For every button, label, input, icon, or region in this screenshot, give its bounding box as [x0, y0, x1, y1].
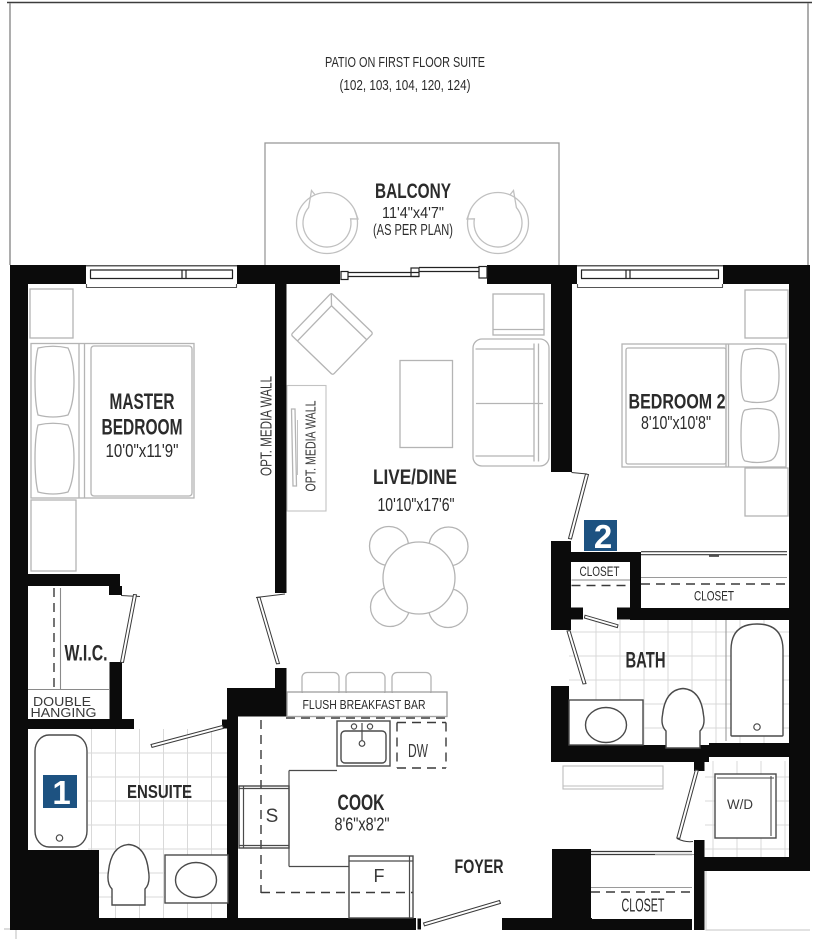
svg-text:1: 1: [52, 774, 70, 811]
svg-text:BEDROOM 2: BEDROOM 2: [629, 390, 726, 414]
svg-text:8'10"x10'8": 8'10"x10'8": [641, 412, 711, 433]
svg-text:COOK: COOK: [338, 790, 385, 815]
svg-text:OPT. MEDIA WALL: OPT. MEDIA WALL: [303, 401, 320, 492]
svg-text:BATH: BATH: [626, 648, 666, 673]
svg-text:10'10"x17'6": 10'10"x17'6": [378, 495, 455, 515]
svg-text:(AS PER PLAN): (AS PER PLAN): [373, 222, 453, 239]
svg-text:HANGING: HANGING: [31, 705, 97, 720]
svg-text:(102, 103, 104, 120, 124): (102, 103, 104, 120, 124): [340, 77, 471, 94]
svg-text:BALCONY: BALCONY: [375, 180, 451, 203]
svg-text:8'6"x8'2": 8'6"x8'2": [335, 815, 390, 835]
svg-text:LIVE/DINE: LIVE/DINE: [373, 466, 457, 489]
svg-text:PATIO ON FIRST FLOOR SUITE: PATIO ON FIRST FLOOR SUITE: [325, 54, 485, 71]
svg-text:OPT. MEDIA WALL: OPT. MEDIA WALL: [259, 376, 276, 476]
svg-text:10'0"x11'9": 10'0"x11'9": [106, 441, 179, 461]
svg-text:F: F: [374, 866, 385, 886]
svg-text:FOYER: FOYER: [455, 857, 504, 878]
svg-text:DW: DW: [408, 741, 428, 761]
svg-text:MASTER: MASTER: [110, 389, 175, 414]
svg-text:W/D: W/D: [727, 797, 753, 812]
svg-text:W.I.C.: W.I.C.: [65, 641, 108, 666]
svg-text:CLOSET: CLOSET: [580, 563, 620, 579]
svg-text:CLOSET: CLOSET: [622, 896, 665, 916]
svg-text:11'4"x4'7": 11'4"x4'7": [382, 205, 444, 222]
svg-text:S: S: [266, 806, 279, 827]
svg-text:BEDROOM: BEDROOM: [102, 415, 183, 440]
svg-text:FLUSH BREAKFAST BAR: FLUSH BREAKFAST BAR: [303, 698, 426, 712]
svg-text:CLOSET: CLOSET: [694, 588, 734, 604]
svg-text:ENSUITE: ENSUITE: [127, 781, 192, 802]
svg-text:2: 2: [594, 518, 612, 555]
